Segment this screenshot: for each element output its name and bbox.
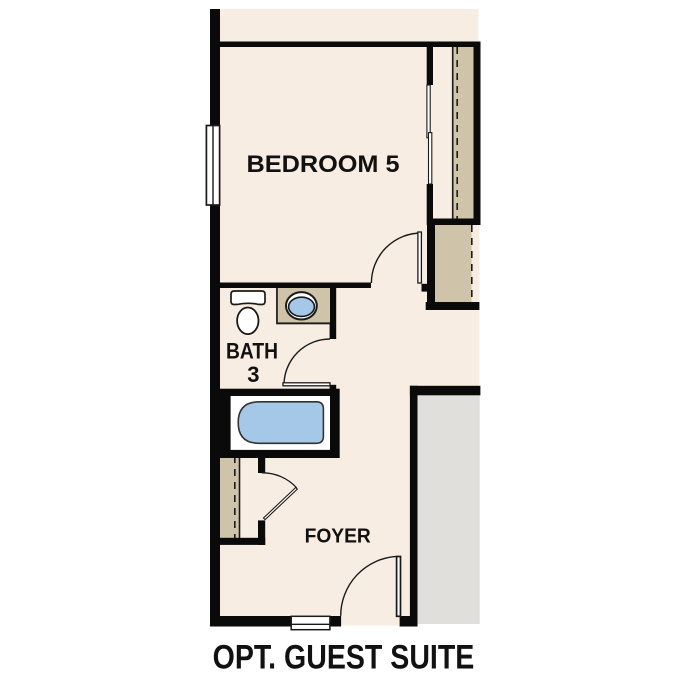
svg-text:OPT. GUEST SUITE: OPT. GUEST SUITE (213, 638, 475, 676)
svg-text:BEDROOM 5: BEDROOM 5 (247, 151, 400, 178)
svg-text:3: 3 (247, 362, 259, 387)
svg-text:BATH: BATH (226, 338, 278, 363)
svg-text:FOYER: FOYER (305, 525, 371, 548)
